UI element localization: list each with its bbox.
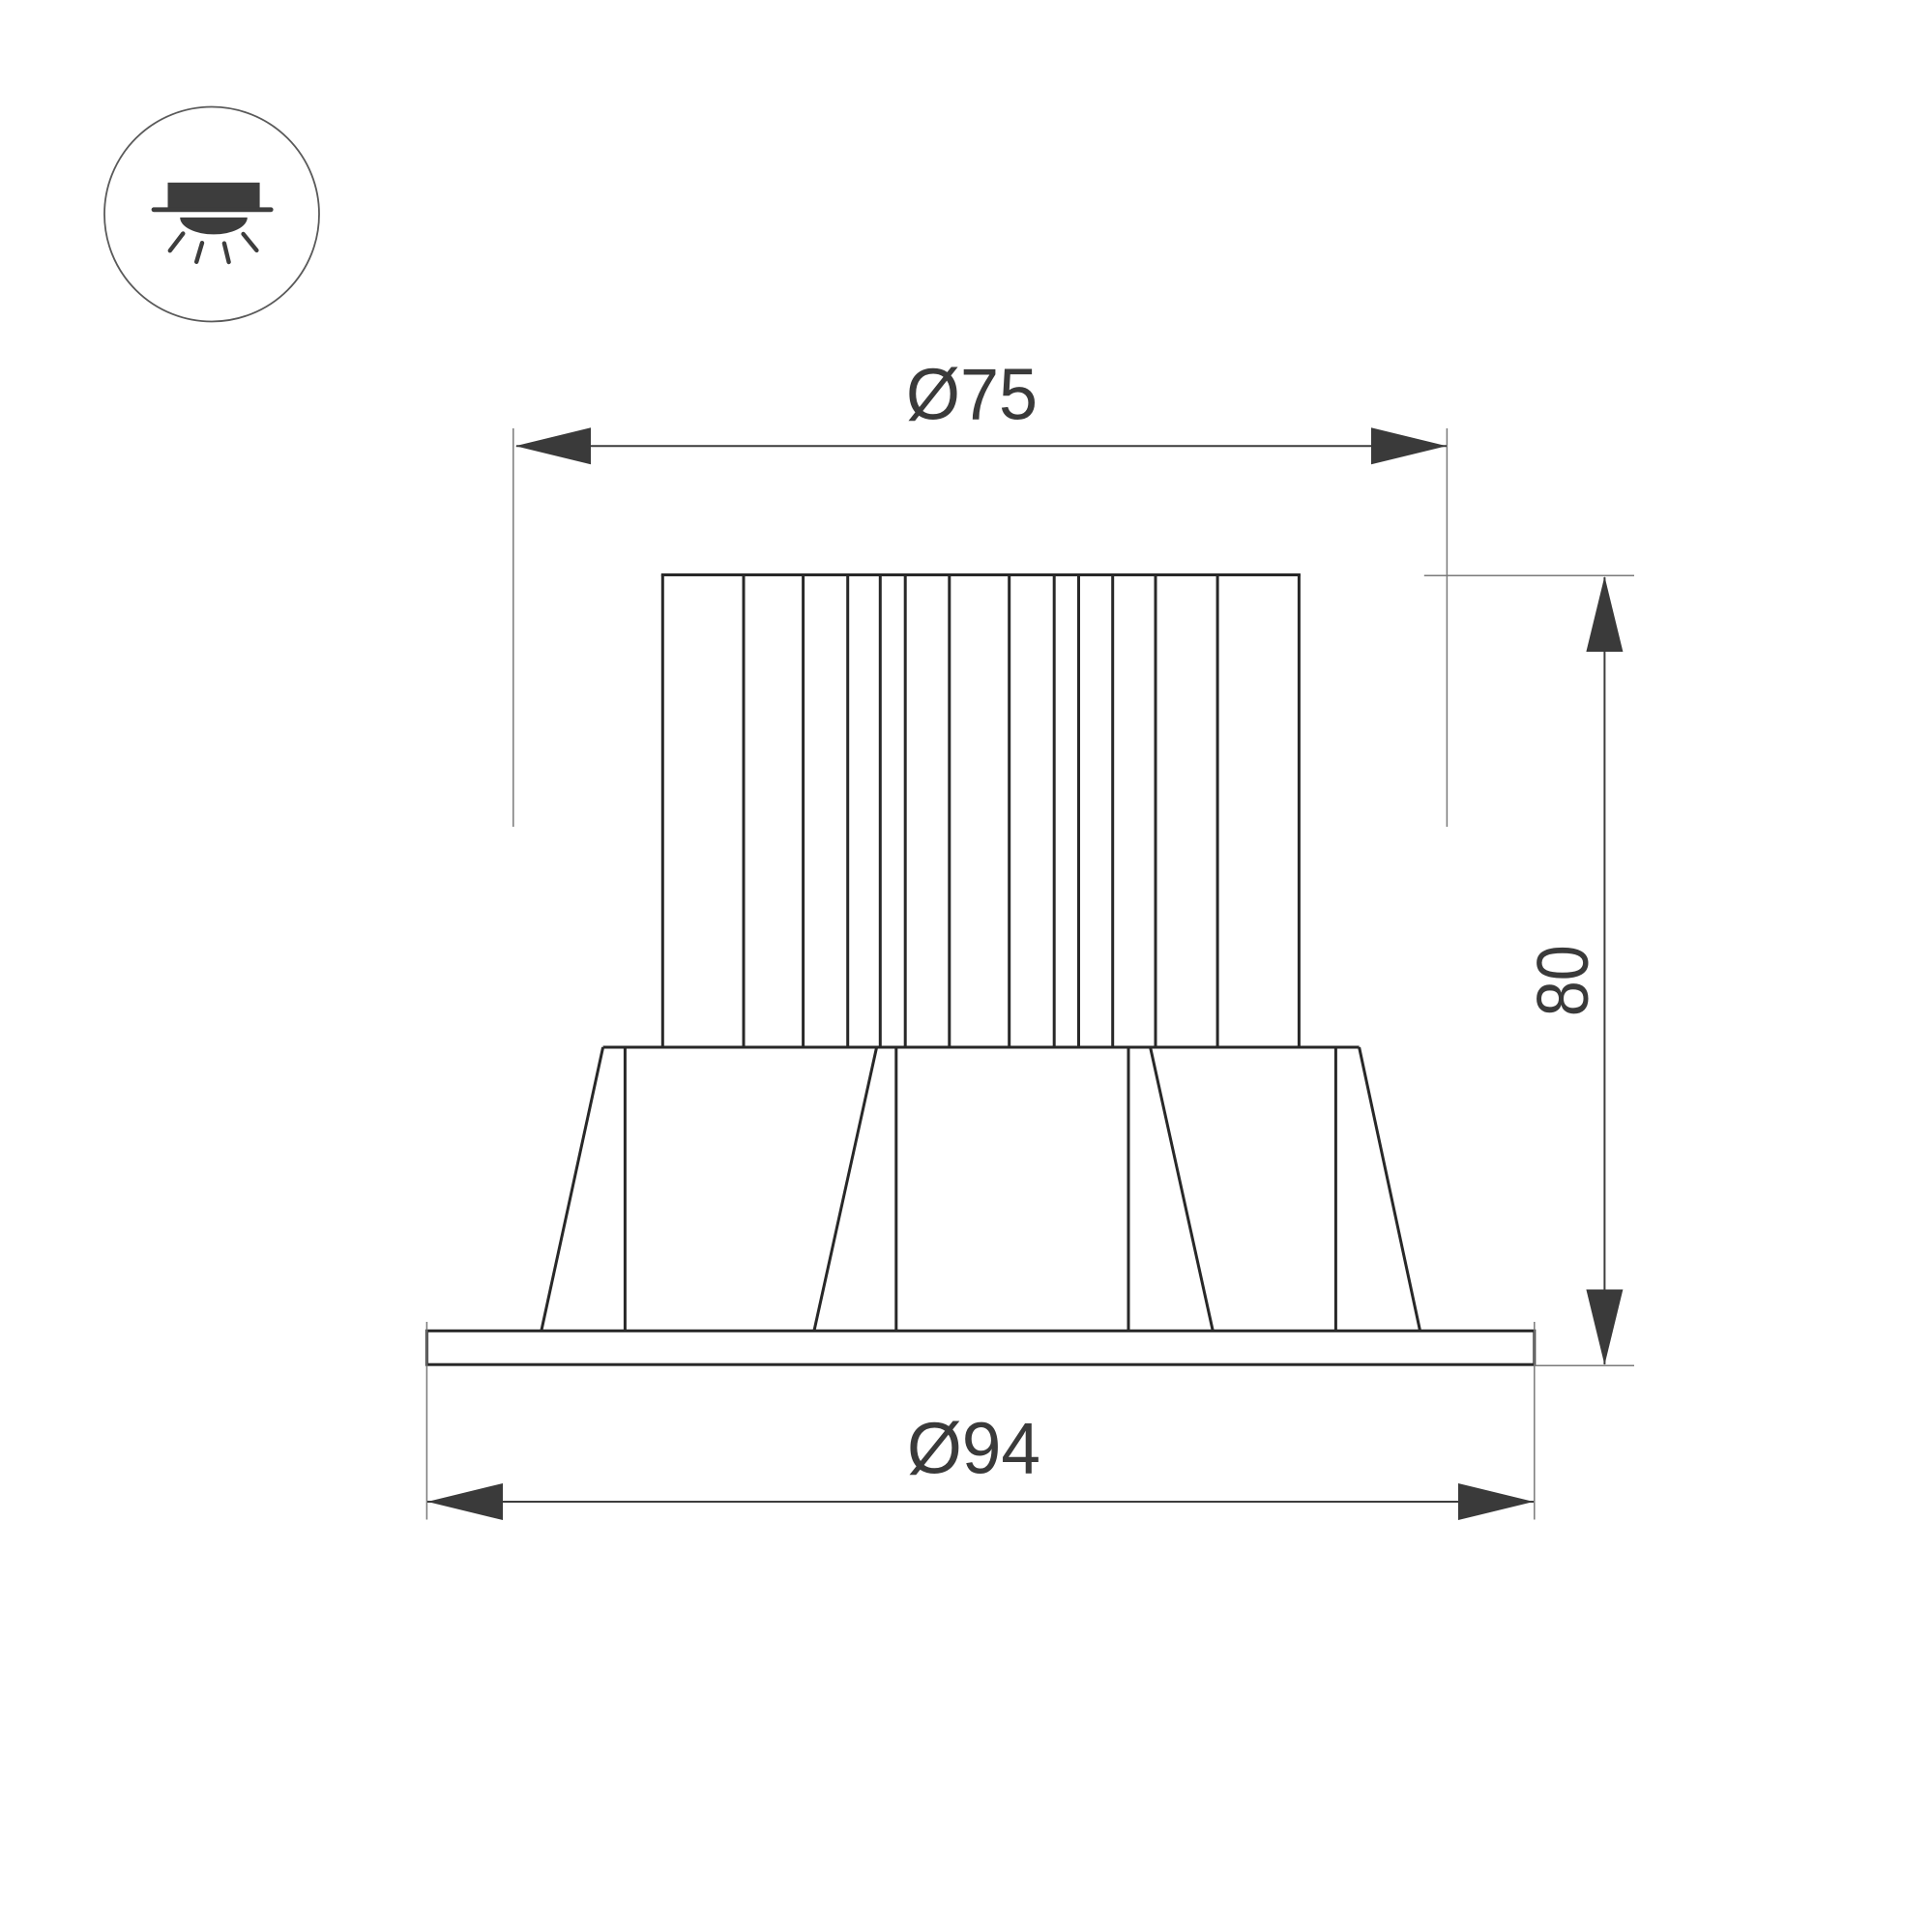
svg-text:80: 80 <box>1522 945 1603 1016</box>
svg-text:Ø94: Ø94 <box>907 1408 1040 1489</box>
svg-text:Ø75: Ø75 <box>906 354 1038 435</box>
